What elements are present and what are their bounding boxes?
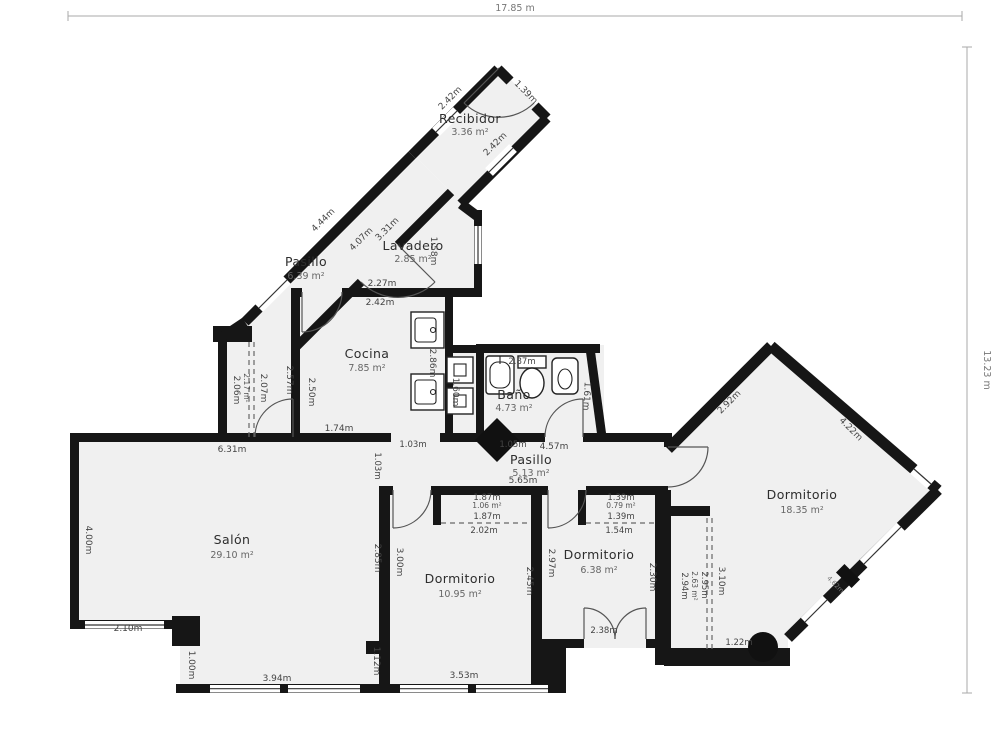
floorplan-canvas: 17.85 m 13.23 m Recibidor 3.36 m² 2.42m …	[0, 0, 1008, 736]
room-name-dorm2: Dormitorio	[564, 547, 635, 562]
dim-pasillo-inf-bottom: 5.65m	[509, 476, 538, 486]
dim-cocina-bottom: 1.74m	[325, 424, 354, 434]
dim-galeria-b: 2.95m	[699, 571, 709, 598]
wall-dorm1-step	[531, 639, 566, 693]
room-area-lavadero: 2.85 m²	[394, 254, 431, 265]
dim-salon-right: 2.85m	[372, 544, 382, 573]
dim-cocina-left-inner: 2.50m	[306, 378, 316, 407]
room-name-dorm1: Dormitorio	[425, 571, 496, 586]
dim-closet2-b: 1.39m	[607, 512, 634, 522]
window	[476, 685, 548, 693]
dim-dorm1-left: 3.00m	[394, 548, 404, 577]
room-area-bano: 4.73 m²	[495, 403, 532, 414]
dim-bano-top: 2.87m	[508, 357, 535, 367]
wall-salon-top	[75, 433, 391, 442]
wall-column-square	[172, 616, 200, 646]
dim-vestibule-wall: 2.06m	[231, 376, 241, 405]
room-area-salon: 29.10 m²	[210, 550, 253, 561]
room-area-cocina: 7.85 m²	[348, 363, 385, 374]
dim-cocina-closet: 1.60m	[450, 378, 460, 407]
dim-vestibule-opening: 2.07m	[258, 374, 268, 403]
room-area-dorm3: 18.35 m²	[780, 505, 823, 516]
window	[288, 685, 360, 693]
dim-salon-top: 6.31m	[218, 445, 247, 455]
room-name-recibidor: Recibidor	[439, 111, 501, 126]
dim-galeria-c: 3.10m	[716, 567, 726, 596]
dim-pasillo-opening-v: 1.03m	[372, 452, 382, 479]
wall-galeria-top-stub	[671, 506, 710, 516]
bidet-icon	[552, 358, 578, 394]
area-closet2: 0.79 m²	[606, 501, 635, 510]
window	[400, 685, 468, 693]
room-area-dorm1: 10.95 m²	[438, 589, 481, 600]
dim-vestibule-area: 2.17 m²	[242, 373, 251, 402]
room-name-salon: Salón	[214, 532, 251, 547]
window	[210, 685, 280, 693]
wall-vestibule-left	[218, 342, 227, 442]
dim-bano-right: 1.61m	[580, 381, 591, 410]
room-name-pasillo-sup: Pasillo	[285, 254, 327, 269]
area-closet1: 1.06 m²	[472, 501, 501, 510]
dim-closet2-c: 1.54m	[605, 526, 632, 536]
dim-dorm1-bottom: 3.53m	[450, 671, 479, 681]
room-area-dorm2: 6.38 m²	[580, 565, 617, 576]
dim-dorm1-right: 2.45m	[524, 567, 534, 596]
room-name-pasillo-inf: Pasillo	[510, 452, 552, 467]
floorplan-drawing: 17.85 m 13.23 m Recibidor 3.36 m² 2.42m …	[0, 0, 1008, 736]
dim-salon-bottom: 3.94m	[263, 674, 292, 684]
window	[475, 226, 482, 264]
kitchen-sink-icon	[411, 312, 444, 348]
dim-lavadero-bottom-outer: 2.42m	[366, 298, 395, 308]
wall-bano-bottom-right	[583, 433, 668, 442]
dim-closet1-c: 2.02m	[470, 526, 497, 536]
floor-salon	[75, 437, 385, 688]
room-name-bano: Baño	[497, 387, 530, 402]
dim-cocina-left-outer: 2.57m	[284, 366, 294, 395]
dim-salon-bottom-left: 2.10m	[114, 624, 143, 634]
dim-pasillo-inf-top: 4.57m	[540, 442, 569, 452]
dim-bano-bottom: 1.05m	[499, 440, 526, 450]
dim-salon-step: 1.00m	[186, 651, 196, 680]
dim-pasillo-opening-h: 1.03m	[399, 440, 426, 450]
dim-salon-left: 4.00m	[83, 526, 93, 555]
overall-width-label: 17.85 m	[495, 3, 534, 14]
room-area-pasillo-sup: 6.39 m²	[287, 271, 324, 282]
wall-bano-top	[476, 344, 600, 353]
dim-galeria-a: 2.94m	[679, 572, 689, 599]
wall-bano-left	[476, 344, 484, 442]
dim-dorm2-left: 2.97m	[546, 549, 556, 578]
room-name-cocina: Cocina	[345, 346, 390, 361]
dim-salon-right-step: 1.12m	[371, 647, 381, 676]
room-name-dorm3: Dormitorio	[767, 487, 838, 502]
overall-height-label: 13.23 m	[981, 350, 992, 389]
dim-lavadero-right: 1.58m	[428, 237, 438, 266]
dim-lavadero-bottom-inner: 2.27m	[368, 279, 397, 289]
wall-closet1-stub	[433, 490, 441, 525]
dim-dorm2-door: 2.38m	[590, 626, 617, 636]
dim-dorm2-right: 2.30m	[647, 563, 657, 592]
kitchen-sink-icon	[411, 374, 444, 410]
dim-closet1-b: 1.87m	[473, 512, 500, 522]
room-area-recibidor: 3.36 m²	[451, 127, 488, 138]
area-galeria: 2.63 m²	[690, 571, 699, 600]
wall-salon-left	[70, 433, 79, 629]
dim-galeria-bottom: 1.22m	[725, 638, 752, 648]
dim-cocina-right: 2.86m	[427, 349, 437, 378]
